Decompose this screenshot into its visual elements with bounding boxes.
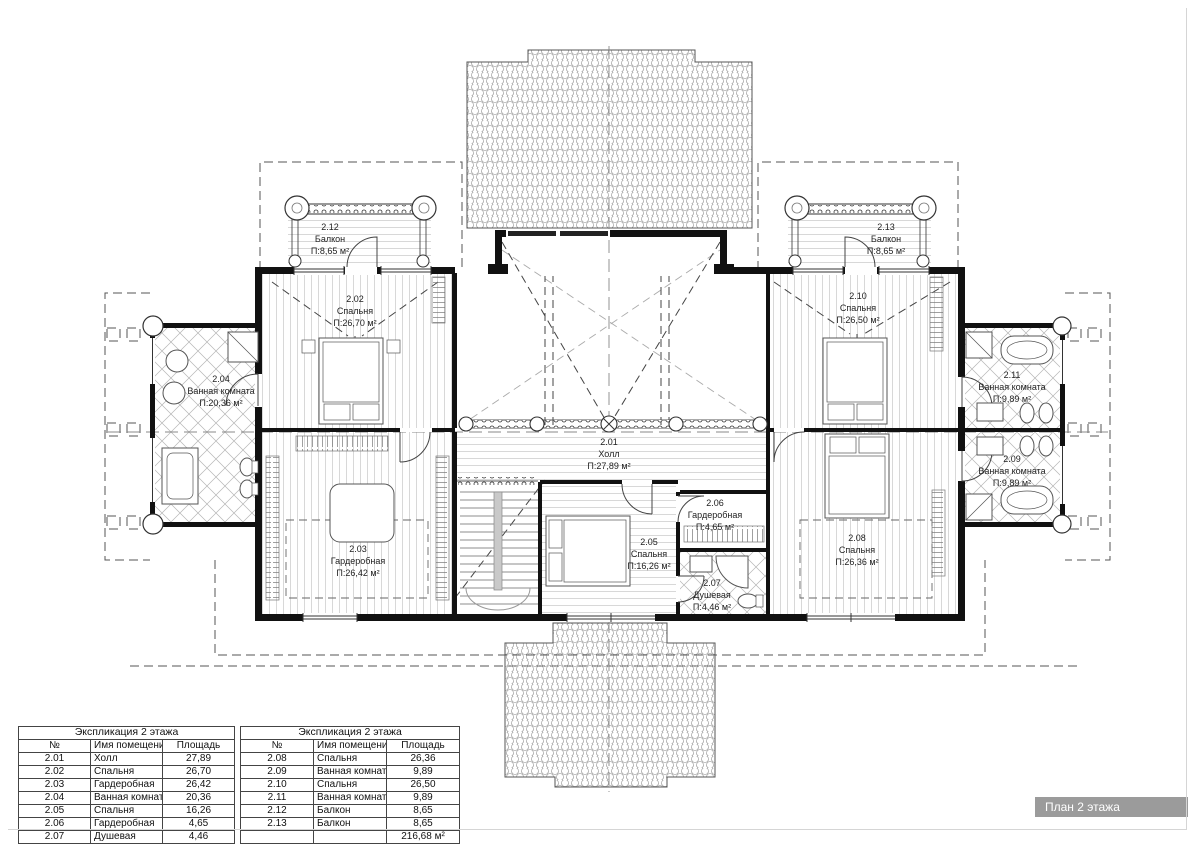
svg-text:П:4,46 м²: П:4,46 м²: [693, 602, 731, 612]
table-row: 2.04Ванная комната20,36: [19, 792, 235, 805]
svg-text:Спальня: Спальня: [840, 303, 876, 313]
svg-text:Спальня: Спальня: [631, 549, 667, 559]
table-row: 2.02Спальня26,70: [19, 766, 235, 779]
table-row: 2.01Холл27,89: [19, 753, 235, 766]
svg-text:Спальня: Спальня: [337, 306, 373, 316]
svg-text:Холл: Холл: [598, 449, 619, 459]
svg-text:П:16,26 м²: П:16,26 м²: [627, 561, 670, 571]
wardrobe-island: [330, 484, 394, 542]
svg-text:Ванная комната: Ванная комната: [978, 466, 1045, 476]
svg-text:2.06: 2.06: [706, 498, 724, 508]
table-row: 2.09Ванная комната9,89: [241, 766, 460, 779]
sheet-frame-right: [1186, 8, 1187, 830]
svg-text:2.03: 2.03: [349, 544, 367, 554]
table-total-row: 216,68 м²: [241, 831, 460, 844]
svg-text:П:9,89 м²: П:9,89 м²: [993, 394, 1031, 404]
svg-text:2.08: 2.08: [848, 533, 866, 543]
log-column: [143, 316, 163, 336]
table-row: 2.03Гардеробная26,42: [19, 779, 235, 792]
svg-text:Ванная комната: Ванная комната: [187, 386, 254, 396]
svg-text:Спальня: Спальня: [839, 545, 875, 555]
total-area: 216,68 м²: [387, 831, 460, 844]
svg-text:П:26,36 м²: П:26,36 м²: [835, 557, 878, 567]
svg-text:П:26,50 м²: П:26,50 м²: [836, 315, 879, 325]
svg-text:П:8,65 м²: П:8,65 м²: [311, 246, 349, 256]
table-header-row: № Имя помещения Площадь: [19, 740, 235, 753]
svg-text:Балкон: Балкон: [315, 234, 345, 244]
table-title: Экспликация 2 этажа: [241, 727, 460, 740]
svg-text:П:26,70 м²: П:26,70 м²: [333, 318, 376, 328]
log-column: [1053, 317, 1071, 335]
svg-text:Ванная комната: Ванная комната: [978, 382, 1045, 392]
svg-text:Гардеробная: Гардеробная: [331, 556, 386, 566]
bed-icon: [823, 338, 887, 424]
log-column: [1053, 515, 1071, 533]
sheet-frame-bottom: [8, 829, 1187, 830]
svg-text:2.12: 2.12: [321, 222, 339, 232]
svg-text:П:20,36 м²: П:20,36 м²: [199, 398, 242, 408]
table-header-row: № Имя помещения Площадь: [241, 740, 460, 753]
table-row: 2.11Ванная комната9,89: [241, 792, 460, 805]
svg-text:2.01: 2.01: [600, 437, 618, 447]
svg-text:Гардеробная: Гардеробная: [688, 510, 743, 520]
table-row: 2.05Спальня16,26: [19, 805, 235, 818]
bed-icon: [546, 516, 630, 586]
drawing-title: План 2 этажа: [1045, 800, 1120, 814]
svg-text:П:9,89 м²: П:9,89 м²: [993, 478, 1031, 488]
bed-icon: [825, 434, 889, 518]
table-title: Экспликация 2 этажа: [19, 727, 235, 740]
svg-text:2.09: 2.09: [1003, 454, 1021, 464]
log-column: [143, 514, 163, 534]
drawing-sheet: 2.12 Балкон П:8,65 м² 2.13 Балкон П:8,65…: [0, 0, 1200, 848]
svg-text:2.11: 2.11: [1004, 370, 1021, 380]
svg-text:П:4,65 м²: П:4,65 м²: [696, 522, 734, 532]
roof-hatch-bottom: [505, 623, 715, 787]
svg-text:2.10: 2.10: [849, 291, 867, 301]
svg-text:2.04: 2.04: [212, 374, 230, 384]
svg-text:2.05: 2.05: [640, 537, 658, 547]
svg-text:П:8,65 м²: П:8,65 м²: [867, 246, 905, 256]
explication-table-2: Экспликация 2 этажа № Имя помещения Площ…: [240, 726, 460, 844]
svg-text:П:26,42 м²: П:26,42 м²: [336, 568, 379, 578]
table-row: 2.08Спальня26,36: [241, 753, 460, 766]
entrance-double-door: [506, 229, 610, 238]
floor-plan: 2.12 Балкон П:8,65 м² 2.13 Балкон П:8,65…: [0, 0, 1200, 848]
svg-text:2.13: 2.13: [877, 222, 895, 232]
svg-text:2.02: 2.02: [346, 294, 364, 304]
svg-text:Душевая: Душевая: [693, 590, 731, 600]
roof-hatch-top: [467, 50, 752, 228]
svg-text:2.07: 2.07: [703, 578, 721, 588]
table-row: 2.07Душевая4,46: [19, 831, 235, 844]
table-row: 2.10Спальня26,50: [241, 779, 460, 792]
table-row: 2.12Балкон8,65: [241, 805, 460, 818]
svg-text:П:27,89 м²: П:27,89 м²: [587, 461, 630, 471]
explication-table-1: Экспликация 2 этажа № Имя помещения Площ…: [18, 726, 235, 844]
svg-text:Балкон: Балкон: [871, 234, 901, 244]
drawing-title-box: План 2 этажа: [1035, 797, 1188, 817]
staircase: [460, 486, 538, 610]
